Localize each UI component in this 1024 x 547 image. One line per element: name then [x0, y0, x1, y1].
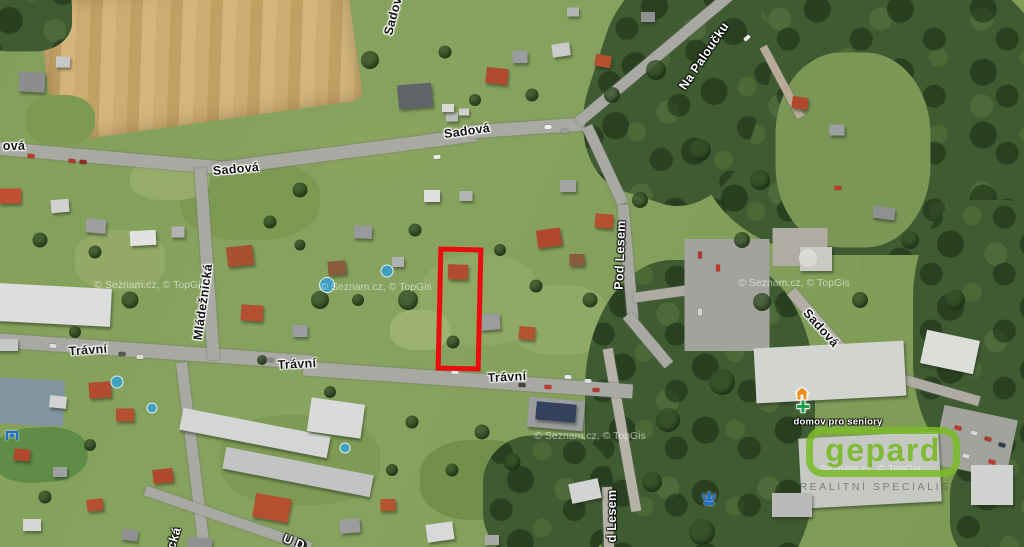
building — [424, 190, 440, 202]
building — [641, 12, 655, 22]
car — [79, 160, 86, 165]
swimming-pool — [111, 376, 124, 389]
car — [27, 154, 34, 159]
tree — [293, 183, 308, 198]
tree — [642, 472, 662, 492]
building — [381, 499, 396, 511]
tree — [439, 46, 452, 59]
building — [85, 218, 106, 234]
building — [187, 536, 212, 547]
building — [971, 465, 1013, 505]
building — [327, 260, 346, 276]
swimming-pool — [381, 265, 394, 278]
tree — [689, 139, 711, 161]
building — [442, 104, 454, 112]
building — [754, 341, 907, 404]
car — [518, 383, 525, 387]
tree — [656, 408, 680, 432]
building — [86, 498, 103, 512]
building — [446, 113, 458, 122]
building — [791, 96, 809, 110]
building — [560, 180, 576, 192]
building — [594, 54, 612, 69]
building — [49, 395, 67, 409]
tree — [526, 89, 539, 102]
tree — [709, 369, 735, 395]
tree — [504, 454, 521, 471]
street-label-cka-cut: cká — [164, 525, 184, 547]
building — [551, 42, 571, 57]
tree — [84, 439, 96, 451]
building — [50, 199, 69, 214]
tree — [530, 280, 543, 293]
tree — [632, 192, 648, 208]
building — [226, 245, 254, 268]
building — [0, 339, 18, 351]
building — [14, 448, 31, 461]
forest-clearing — [776, 53, 931, 248]
building — [570, 254, 585, 266]
building — [307, 397, 365, 438]
tree — [604, 87, 620, 103]
car — [136, 355, 143, 359]
car — [561, 129, 568, 133]
swimming-pool — [147, 403, 158, 414]
attribution-watermark: © Seznam.cz, © TopGis — [738, 277, 850, 289]
building — [830, 125, 845, 136]
tree — [33, 233, 48, 248]
tree — [753, 293, 771, 311]
building — [479, 313, 500, 330]
attribution-watermark: © Seznam.cz, © TopGis — [320, 281, 432, 293]
tree — [398, 290, 418, 310]
tree — [264, 216, 277, 229]
building — [130, 230, 157, 246]
fountain-icon — [701, 490, 718, 512]
car — [584, 379, 591, 383]
round-structure — [799, 249, 817, 267]
tree — [469, 94, 481, 106]
car — [49, 344, 56, 348]
building — [0, 189, 21, 204]
attribution-watermark: © Seznam.cz, © TopGis — [94, 279, 206, 291]
building — [23, 519, 41, 531]
playground-icon — [6, 428, 19, 446]
tree — [386, 464, 398, 476]
street-label-sadova-cut-top: Sadov — [381, 0, 405, 37]
tree — [39, 491, 52, 504]
gepard-logo: gepard — [806, 427, 960, 477]
building — [513, 51, 528, 63]
pharmacy-cross-icon — [797, 400, 810, 418]
tree — [750, 170, 770, 190]
swimming-pool — [340, 443, 351, 454]
car — [698, 252, 702, 259]
tree — [122, 292, 139, 309]
tree — [901, 231, 919, 249]
car — [698, 309, 702, 316]
building — [397, 83, 433, 110]
building — [252, 493, 292, 523]
tree — [475, 425, 490, 440]
building — [121, 528, 138, 541]
building — [425, 521, 454, 543]
road — [176, 362, 210, 547]
car — [266, 358, 273, 362]
building — [116, 409, 134, 422]
street-label-travni-3: Trávní — [487, 369, 526, 385]
tree — [409, 224, 422, 237]
building — [392, 257, 404, 267]
street-label-travni-2: Trávní — [277, 356, 316, 372]
building — [485, 67, 509, 85]
tree — [324, 386, 336, 398]
car — [544, 125, 551, 129]
car — [433, 155, 440, 160]
tree — [852, 292, 868, 308]
road — [0, 333, 313, 370]
building — [56, 57, 70, 68]
street-label-travni-1: Trávní — [68, 342, 108, 359]
building — [536, 227, 562, 248]
building — [18, 71, 45, 92]
tree — [945, 290, 965, 310]
aerial-map[interactable]: ová Sadová Sadová Sadov Sadová Na Palouč… — [0, 0, 1024, 547]
car — [68, 159, 75, 164]
building — [459, 109, 469, 116]
building — [518, 326, 535, 340]
building — [339, 518, 360, 534]
car — [564, 375, 571, 379]
street-label-pod-lesem: Pod Lesem — [612, 220, 628, 290]
building — [535, 401, 576, 422]
gepard-tagline: REALITNÍ SPECIALISTA — [799, 481, 968, 493]
tree — [352, 294, 364, 306]
building — [172, 227, 185, 238]
gepard-logo-text: gepard — [825, 434, 941, 466]
tree — [583, 293, 598, 308]
car — [118, 352, 125, 356]
lawn-patch — [25, 95, 95, 145]
tree — [646, 60, 666, 80]
tree — [311, 291, 329, 309]
tree — [89, 246, 102, 259]
building — [293, 325, 308, 337]
street-label-pod-lesem-cut: d Lesem — [605, 490, 619, 543]
street-label-u-d-cut: U D — [281, 531, 307, 547]
tree — [446, 464, 459, 477]
building — [88, 381, 111, 398]
street-label-sadova-cut-left: ová — [3, 139, 25, 153]
tree — [361, 51, 379, 69]
tree — [734, 232, 750, 248]
building — [53, 467, 67, 477]
highlighted-parcel-outline — [436, 247, 484, 372]
building — [354, 225, 373, 239]
car — [835, 186, 842, 190]
building — [152, 468, 173, 484]
building — [485, 535, 499, 545]
tree — [406, 416, 419, 429]
building — [594, 213, 613, 229]
car — [592, 388, 599, 392]
building — [567, 8, 579, 17]
tree — [295, 240, 306, 251]
building — [772, 493, 812, 517]
attribution-watermark: © Seznam.cz, © TopGis — [534, 430, 646, 442]
tree — [494, 244, 506, 256]
car — [544, 385, 551, 389]
building — [240, 304, 263, 321]
car — [716, 265, 720, 272]
building — [460, 191, 473, 201]
tree — [69, 326, 81, 338]
tree — [689, 519, 715, 545]
poi-label-senior-home: domov pro seniory — [794, 417, 883, 428]
